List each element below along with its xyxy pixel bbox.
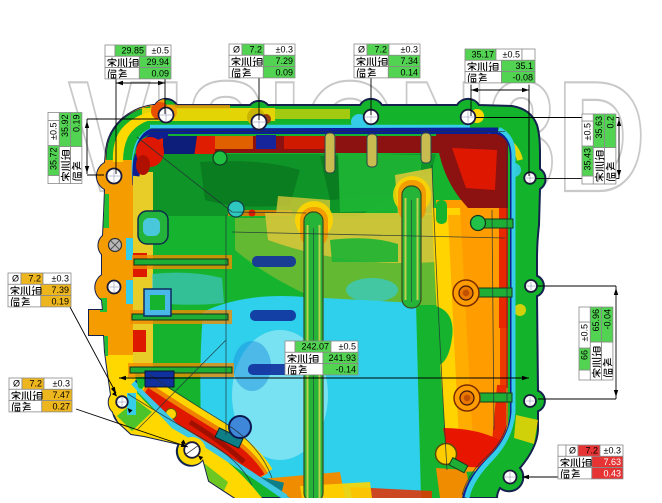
svg-text:35.17: 35.17: [471, 50, 494, 60]
svg-text:35.92: 35.92: [60, 115, 70, 138]
svg-text:29.85: 29.85: [121, 46, 144, 56]
svg-text:Ø: Ø: [233, 45, 240, 55]
svg-text:±0.5: ±0.5: [503, 50, 520, 60]
svg-text:Ø: Ø: [569, 446, 576, 456]
svg-text:±0.3: ±0.3: [53, 379, 70, 389]
svg-text:0.43: 0.43: [603, 468, 621, 478]
svg-text:Ø: Ø: [12, 274, 19, 284]
svg-text:35.72: 35.72: [49, 148, 59, 171]
svg-text:±0.3: ±0.3: [276, 45, 293, 55]
svg-text:±0.5: ±0.5: [49, 123, 59, 140]
svg-text:±0.5: ±0.5: [580, 324, 590, 341]
svg-text:7.63: 7.63: [603, 457, 621, 467]
svg-text:7.29: 7.29: [275, 56, 293, 66]
svg-text:35.63: 35.63: [594, 116, 604, 139]
svg-text:7.2: 7.2: [249, 45, 262, 55]
svg-text:±0.3: ±0.3: [401, 45, 418, 55]
svg-text:±0.5: ±0.5: [583, 123, 593, 140]
svg-text:35.1: 35.1: [515, 61, 533, 71]
svg-text:-0.08: -0.08: [512, 72, 533, 82]
svg-text:35.43: 35.43: [583, 148, 593, 171]
svg-text:7.34: 7.34: [400, 56, 418, 66]
svg-text:241.93: 241.93: [328, 353, 356, 363]
svg-text:±0.5: ±0.5: [152, 46, 169, 56]
svg-text:7.39: 7.39: [51, 285, 69, 295]
svg-text:0.14: 0.14: [400, 67, 418, 77]
svg-text:±0.5: ±0.5: [339, 342, 356, 352]
svg-text:Ø: Ø: [358, 45, 365, 55]
svg-text:7.2: 7.2: [28, 274, 41, 284]
svg-text:0.19: 0.19: [71, 115, 81, 133]
svg-text:7.2: 7.2: [585, 446, 598, 456]
svg-text:0.19: 0.19: [51, 296, 69, 306]
svg-text:-0.14: -0.14: [335, 364, 356, 374]
svg-text:66: 66: [580, 350, 590, 360]
svg-text:-0.04: -0.04: [602, 309, 612, 330]
svg-text:0.2: 0.2: [605, 116, 615, 129]
svg-text:±0.3: ±0.3: [52, 274, 69, 284]
svg-text:7.2: 7.2: [29, 379, 42, 389]
svg-text:0.09: 0.09: [151, 68, 169, 78]
svg-text:0.09: 0.09: [275, 67, 293, 77]
svg-text:±0.3: ±0.3: [604, 446, 621, 456]
svg-text:0.27: 0.27: [52, 401, 70, 411]
svg-text:7.2: 7.2: [374, 45, 387, 55]
svg-text:Ø: Ø: [13, 379, 20, 389]
svg-text:65.96: 65.96: [591, 309, 601, 332]
svg-text:242.07: 242.07: [301, 342, 329, 352]
svg-text:7.47: 7.47: [52, 390, 70, 400]
svg-text:29.94: 29.94: [146, 57, 169, 67]
